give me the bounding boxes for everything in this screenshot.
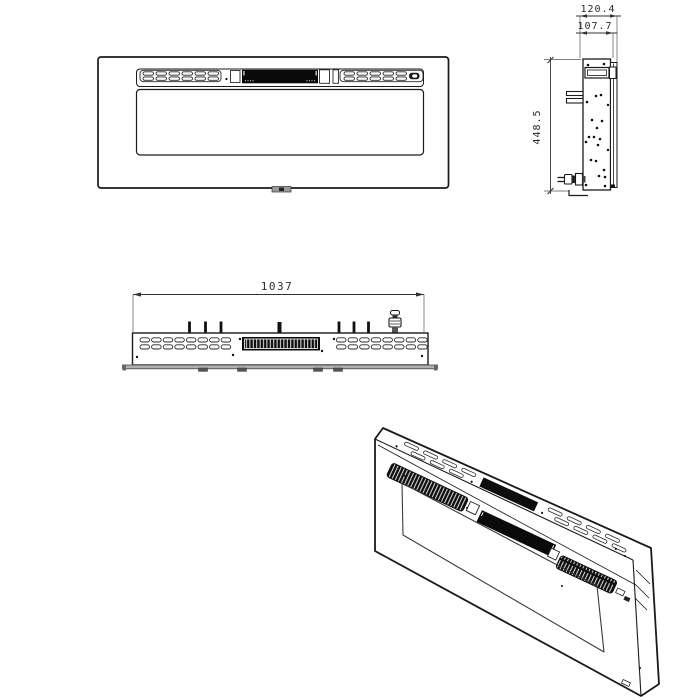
front-left-button bbox=[231, 71, 241, 83]
side-view: 120.4 107.7 448.5 bbox=[532, 4, 621, 196]
technical-drawing-canvas: 120.4 107.7 448.5 bbox=[0, 0, 700, 700]
front-right-button bbox=[320, 70, 330, 84]
front-left-vent bbox=[140, 70, 221, 81]
top-front-flange bbox=[123, 365, 438, 371]
side-body bbox=[583, 59, 611, 190]
side-mounting-tabs bbox=[567, 92, 584, 104]
technical-drawing-page: 120.4 107.7 448.5 bbox=[0, 0, 700, 700]
top-cord-gland bbox=[389, 311, 401, 334]
dim-width-label: 1037 bbox=[261, 280, 294, 293]
side-bottom-bracket bbox=[569, 190, 588, 196]
dim-depth-body-label: 107.7 bbox=[577, 21, 612, 32]
top-heater-grill bbox=[242, 337, 320, 351]
dim-height-label: 448.5 bbox=[532, 109, 543, 144]
top-pins bbox=[188, 322, 370, 334]
front-indicator-dot bbox=[225, 78, 227, 80]
dim-height: 448.5 bbox=[532, 57, 581, 194]
front-display bbox=[242, 70, 318, 84]
isometric-view bbox=[375, 428, 659, 696]
front-view bbox=[98, 57, 449, 192]
side-front-glass-edge bbox=[610, 63, 617, 188]
side-power-plug bbox=[558, 174, 586, 186]
front-glass-panel bbox=[137, 90, 424, 156]
side-wall-bracket bbox=[585, 67, 616, 79]
front-power-switch bbox=[409, 73, 420, 79]
dim-depth-overall-label: 120.4 bbox=[580, 4, 615, 15]
iso-silhouette bbox=[375, 428, 659, 696]
front-right-button-2 bbox=[333, 70, 339, 84]
dim-depth-body: 107.7 bbox=[576, 21, 617, 58]
front-bottom-tab bbox=[272, 187, 291, 193]
top-view: 1037 bbox=[123, 280, 438, 371]
